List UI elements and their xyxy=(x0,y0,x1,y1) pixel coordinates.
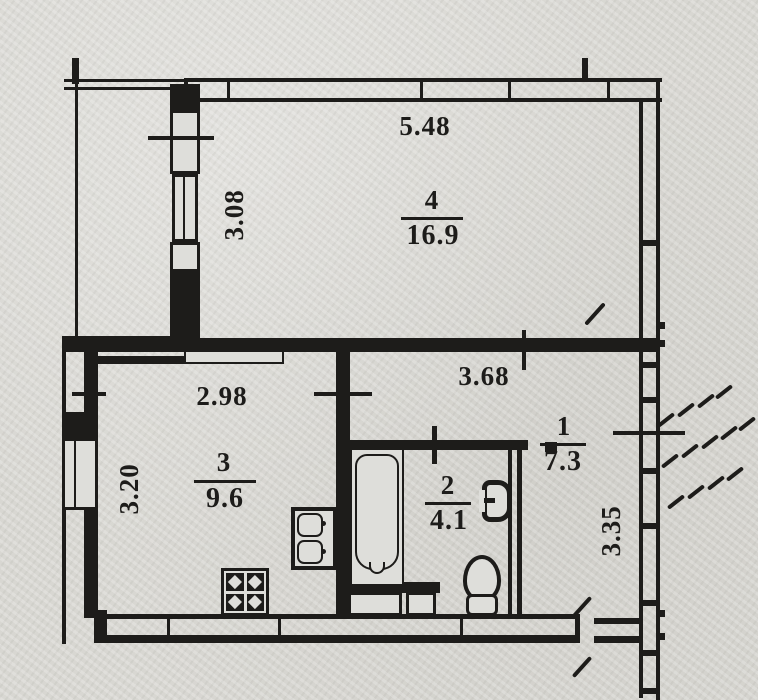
wall-segment xyxy=(170,272,200,338)
hatch-mark xyxy=(667,494,685,509)
balcony-window-glazing xyxy=(183,177,185,239)
wall-nub xyxy=(660,633,665,640)
wall-pier xyxy=(348,592,402,616)
wall-joint xyxy=(227,82,230,98)
dim-tick xyxy=(314,392,372,396)
wall-cap xyxy=(575,614,580,643)
dim-room4-width: 5.48 xyxy=(380,112,470,142)
wall-joint xyxy=(420,82,423,98)
break-mark xyxy=(572,656,592,678)
stove-burner xyxy=(247,573,265,591)
room3-area: 9.6 xyxy=(193,484,257,515)
right-wall-rung xyxy=(639,600,660,606)
hatch-mark xyxy=(726,466,744,481)
kitchen-top-wall xyxy=(94,356,184,364)
dim-tick xyxy=(432,426,437,464)
right-wall-rung xyxy=(639,523,660,529)
wall-pier xyxy=(406,592,436,616)
toilet-tank xyxy=(466,594,498,616)
wall-joint xyxy=(460,614,463,643)
hatch-mark xyxy=(661,453,679,468)
right-wall-rung xyxy=(639,240,660,246)
hatch-mark xyxy=(681,443,699,458)
top-wall-outer xyxy=(184,78,662,82)
bathroom-right-wall xyxy=(508,440,512,618)
wall-stub xyxy=(594,618,640,624)
wall-segment xyxy=(62,412,98,438)
wall-nub xyxy=(660,340,665,347)
dim-hall-width: 3.68 xyxy=(439,362,529,392)
wall-cap xyxy=(94,610,107,643)
right-wall-rung xyxy=(639,397,660,403)
room2-number: 2 xyxy=(428,471,468,501)
right-wall-rung xyxy=(639,688,660,694)
room2-area: 4.1 xyxy=(419,506,479,537)
hatch-mark xyxy=(697,393,715,408)
wall-joint xyxy=(167,614,170,643)
right-wall-outer xyxy=(656,78,660,700)
wall-nub xyxy=(660,610,665,617)
wall-nub xyxy=(660,322,665,329)
bathroom-right-wall xyxy=(517,440,522,618)
room1-number: 1 xyxy=(544,412,584,442)
burner-diamond xyxy=(228,595,242,609)
dim-kitchen-width: 2.98 xyxy=(177,382,267,412)
right-wall-rung xyxy=(639,650,660,656)
dim-tick xyxy=(613,431,685,435)
dim-balcony-depth: 3.08 xyxy=(220,170,250,260)
kitchen-window xyxy=(62,438,98,510)
wall-joint xyxy=(184,78,188,102)
floor-plan: 5.48 3.08 2.98 3.20 3.68 3.35 4 16.9 3 9… xyxy=(0,0,758,700)
hatch-mark xyxy=(687,484,705,499)
stove-icon xyxy=(221,568,269,616)
dim-right-side: 3.35 xyxy=(597,486,627,576)
sink-bowl xyxy=(297,540,323,564)
burner-diamond xyxy=(248,595,262,609)
hatch-mark xyxy=(677,402,695,417)
wall-segment xyxy=(184,350,284,364)
wall-joint xyxy=(508,82,511,98)
balcony-top-rail xyxy=(64,79,188,82)
sink-drain xyxy=(321,549,326,554)
room1-area: 7.3 xyxy=(533,447,593,478)
hatch-mark xyxy=(720,425,738,440)
room3-number: 3 xyxy=(204,448,244,478)
room4-area: 16.9 xyxy=(396,221,470,252)
wall-segment xyxy=(170,110,200,174)
sink-drain xyxy=(321,521,326,526)
stove-burner xyxy=(226,594,244,612)
right-wall-rung xyxy=(639,362,660,368)
burner-diamond xyxy=(248,575,262,589)
stove-burner xyxy=(226,573,244,591)
hatch-mark xyxy=(738,416,756,431)
balcony-left-rail xyxy=(75,82,78,338)
hatch-mark xyxy=(701,434,719,449)
bathtub-inner xyxy=(355,454,399,570)
stove-burner xyxy=(247,594,265,612)
wall-joint xyxy=(278,614,281,643)
dim-tick xyxy=(148,136,214,140)
burner-diamond xyxy=(228,575,242,589)
break-mark xyxy=(584,302,606,325)
hatch-mark xyxy=(707,475,725,490)
wall-stub xyxy=(594,636,640,643)
hatch-mark xyxy=(715,384,733,399)
dim-tick xyxy=(72,392,106,396)
sink-bowl xyxy=(297,513,323,537)
balcony-window xyxy=(172,174,198,242)
dim-kitchen-depth: 3.20 xyxy=(115,444,145,534)
washbasin-tap xyxy=(484,498,495,503)
kitchen-window-glazing xyxy=(74,441,76,507)
dim-tick xyxy=(72,58,79,84)
mid-wall xyxy=(62,338,660,352)
break-mark xyxy=(572,596,592,618)
wall-segment xyxy=(170,242,200,272)
right-wall-rung xyxy=(639,468,660,474)
top-wall-inner xyxy=(184,98,662,102)
room4-number: 4 xyxy=(412,186,452,216)
wall-joint xyxy=(607,82,610,98)
dim-tick xyxy=(582,58,588,80)
